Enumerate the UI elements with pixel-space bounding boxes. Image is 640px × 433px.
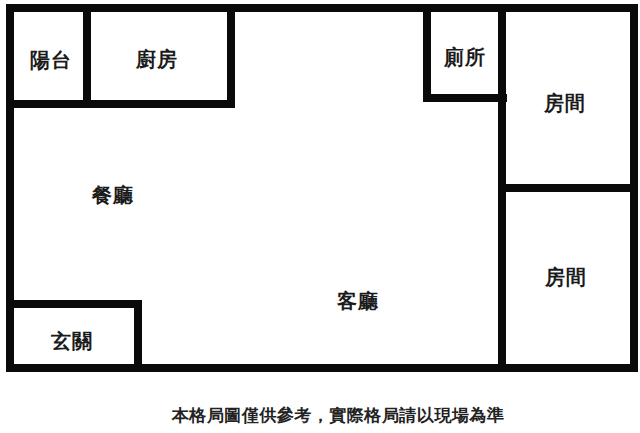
room-label-bedroom-bottom: 房間 [545,264,587,291]
wall-bedrooms-left [498,12,506,364]
room-label-balcony: 陽台 [30,47,72,74]
room-label-toilet: 廁所 [444,44,486,71]
room-label-dining: 餐廳 [92,182,134,209]
wall-bedrooms-divider [506,184,630,192]
wall-toilet-bottom [423,94,507,102]
wall-balcony-kitchen-divider [83,12,91,104]
wall-entrance-right [134,300,142,364]
wall-kitchen-right [227,12,235,104]
wall-outer-top [6,4,638,12]
wall-kitchen-bottom [6,100,235,108]
wall-outer-right [630,4,638,372]
room-label-bedroom-top: 房間 [544,90,586,117]
disclaimer-text: 本格局圖僅供參考，實際格局請以現場為準 [172,404,505,427]
room-label-entrance: 玄關 [51,328,93,355]
wall-outer-bottom [6,364,638,372]
floor-plan-page: 陽台 廚房 廁所 房間 餐廳 客廳 房間 玄關 本格局圖僅供參考，實際格局請以現… [0,0,640,433]
wall-toilet-left [423,12,431,102]
wall-entrance-top [6,300,142,308]
room-label-kitchen: 廚房 [136,46,178,73]
room-label-living: 客廳 [337,288,379,315]
wall-outer-left [6,4,14,372]
floor-plan: 陽台 廚房 廁所 房間 餐廳 客廳 房間 玄關 [0,0,640,433]
